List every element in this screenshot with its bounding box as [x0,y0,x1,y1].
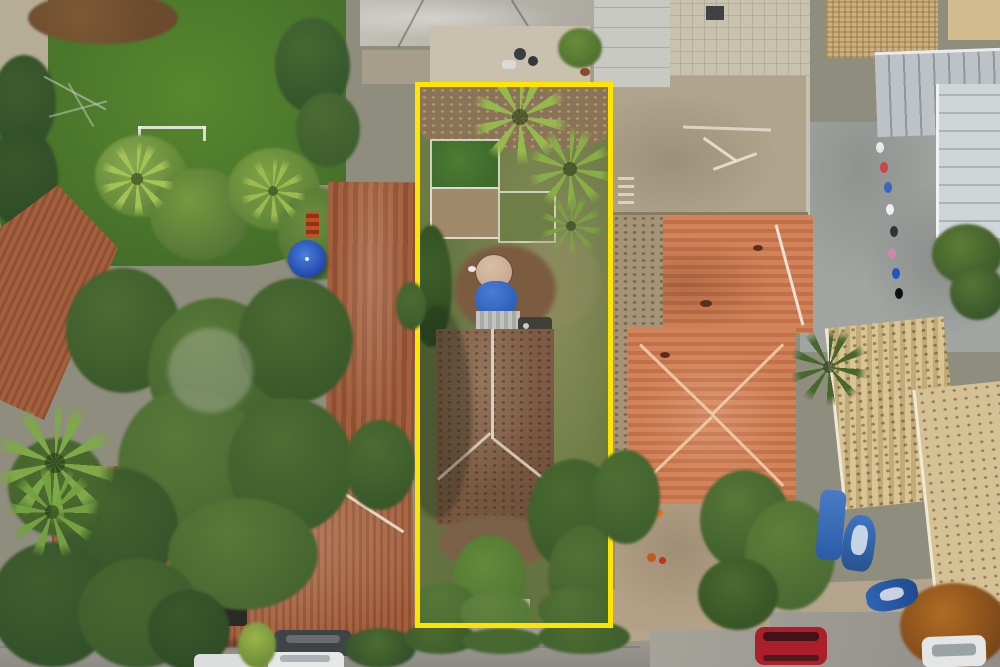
banana-fan [100,142,174,216]
street-bush-yellow [238,622,276,667]
patio-plant [558,28,602,68]
hedge-below-lot [462,628,542,654]
clothesline-item [886,204,894,215]
debris-ladder [618,174,634,204]
banana-fan [240,158,306,224]
driveway-top [594,0,670,88]
roof-seam [397,0,424,47]
car-windshield [280,655,330,662]
clothesline-item [888,248,896,259]
white-car-right [921,635,986,667]
vacant-dirt-lot [612,70,810,220]
patio-furniture [528,56,538,66]
car-windows [932,643,976,657]
white-building-right [936,84,1000,238]
patio-furniture [502,60,516,69]
umbrella-pole-tip [305,257,309,261]
canopy-over-roof [345,420,415,510]
roof-vent [706,6,724,20]
clothesline-item [892,268,900,279]
clothesline-item [880,162,888,173]
boat-deck [849,524,869,556]
roof-ridge-vertical [491,329,494,439]
tree-canopy [238,278,353,403]
clothesline-item [890,226,898,237]
debris-plank [713,152,757,171]
small-dog [468,266,476,272]
roof-vent-dark [660,352,670,358]
red-item [659,557,666,564]
clothesline-item [876,142,884,153]
bushes-right [950,265,1000,320]
blue-boat [839,513,878,573]
roof-stain [700,300,712,307]
patio-top-right [668,0,810,76]
patio-item-red [580,68,590,76]
tan-roof-corner [948,0,1000,40]
outlined-lot [420,87,608,623]
property-boundary-outline [415,82,613,628]
clothesline-item [884,182,892,193]
straw-roof-top-right [826,0,938,58]
van-windshield [763,632,819,641]
leaf-over-boundary-left [396,282,426,330]
debris-plank [683,125,771,131]
dead-branch-patch [168,328,253,413]
aerial-photo [0,0,1000,667]
palm-tree-right [790,328,868,406]
clothesline-item [895,288,903,299]
lot-wall-right [806,70,810,216]
car-roof-highlight [286,635,340,643]
van-rear-window [763,655,819,661]
trees-right-of-lawn [296,92,360,167]
jet-ski-seat [879,586,905,603]
hip-ridge [639,343,713,415]
roof-stain [753,245,763,251]
tree-clump-right [698,558,778,630]
orange-bucket [647,553,656,562]
debris-plank [703,137,737,162]
tree-over-boundary-right [592,450,660,544]
hip-ridge [711,343,784,415]
patio-furniture [514,48,526,60]
red-van [755,627,827,665]
lounge-chair [306,212,319,238]
patio-top [430,26,590,82]
white-car-left [268,652,344,667]
